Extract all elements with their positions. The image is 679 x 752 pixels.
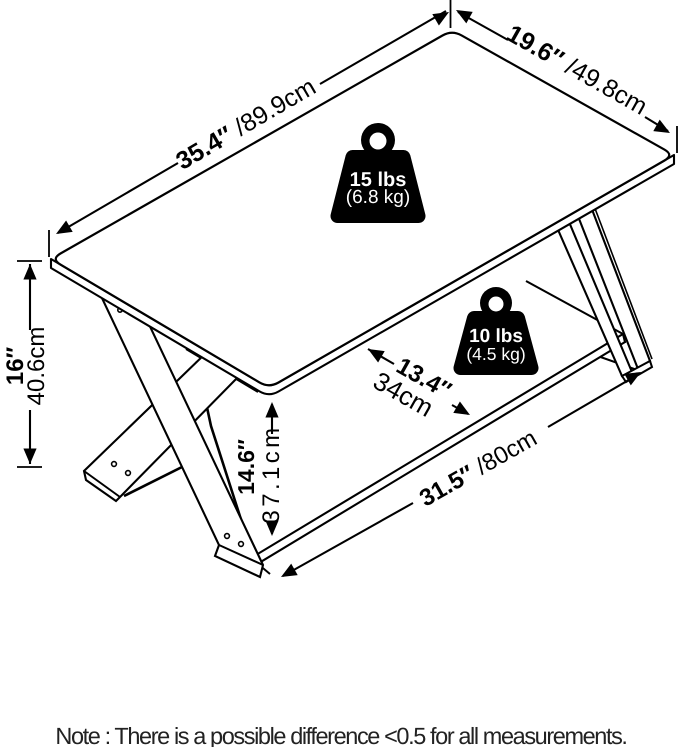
svg-text:Note : There is a possible dif: Note : There is a possible difference <0…	[55, 723, 626, 747]
svg-text:(6.8 kg): (6.8 kg)	[346, 187, 410, 208]
svg-text:40.6cm: 40.6cm	[23, 327, 50, 406]
svg-text:(4.5 kg): (4.5 kg)	[466, 344, 525, 364]
svg-text:14.6″: 14.6″	[233, 439, 259, 495]
svg-text:37.1cm: 37.1cm	[258, 424, 285, 523]
